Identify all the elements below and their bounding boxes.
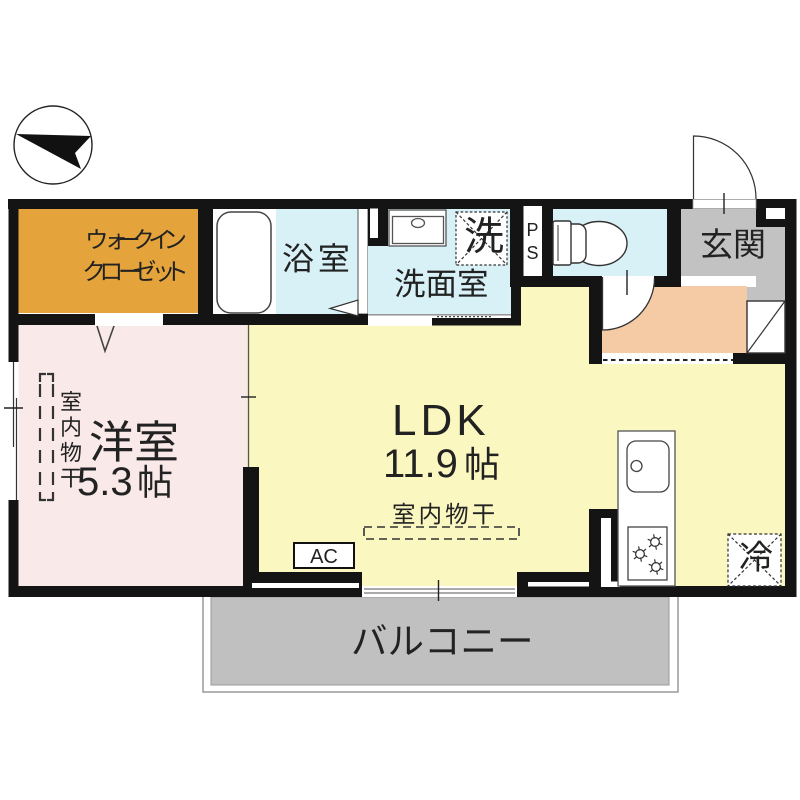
svg-text:S: S: [526, 243, 538, 263]
svg-text:11.9: 11.9: [383, 442, 458, 486]
svg-text:AC: AC: [310, 546, 338, 568]
svg-text:5.3: 5.3: [77, 460, 133, 504]
svg-text:P: P: [526, 220, 538, 240]
svg-text:LDK: LDK: [392, 396, 490, 445]
